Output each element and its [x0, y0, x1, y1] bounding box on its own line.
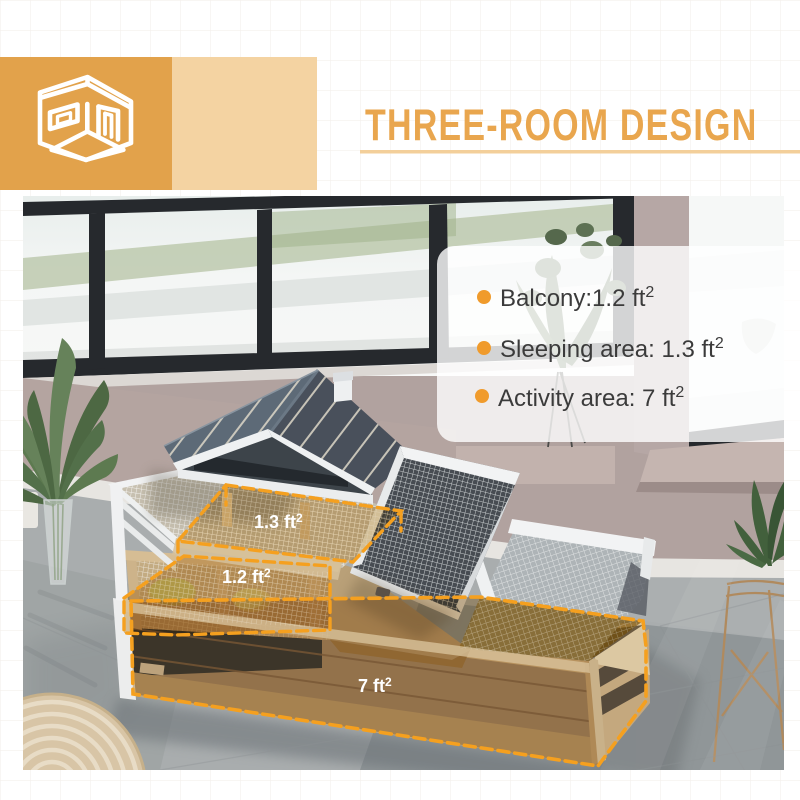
svg-text:THREE-ROOM DESIGN: THREE-ROOM DESIGN	[365, 101, 757, 150]
svg-text:Sleeping area: 1.3 ft2: Sleeping area: 1.3 ft2	[500, 335, 724, 363]
svg-text:Balcony:1.2 ft2: Balcony:1.2 ft2	[500, 284, 654, 312]
svg-text:1.3 ft2: 1.3 ft2	[254, 511, 303, 532]
svg-text:Activity area: 7 ft2: Activity area: 7 ft2	[498, 384, 684, 412]
svg-text:1.2 ft2: 1.2 ft2	[222, 566, 271, 587]
